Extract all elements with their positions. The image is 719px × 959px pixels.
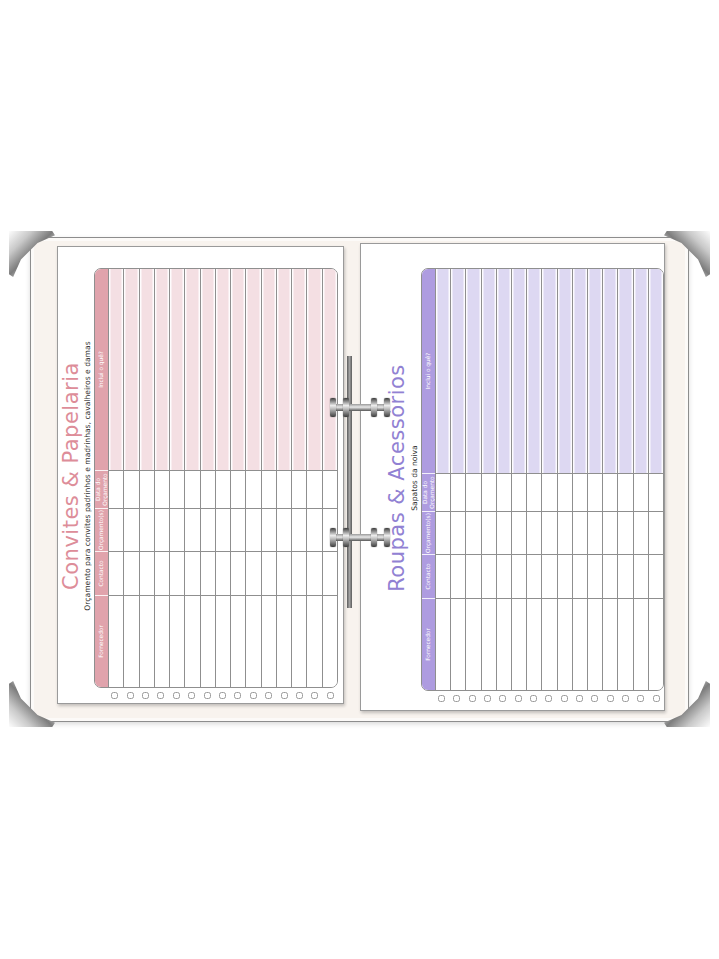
table-row bbox=[526, 269, 541, 690]
table-cell bbox=[292, 595, 306, 687]
table-cell bbox=[155, 595, 169, 687]
row-checkbox-slot bbox=[122, 691, 137, 701]
row-checkbox bbox=[157, 693, 164, 700]
ring-flange bbox=[330, 528, 336, 547]
table-cell bbox=[307, 470, 321, 508]
row-checkbox bbox=[111, 693, 118, 700]
table-cell bbox=[155, 470, 169, 508]
table-cell bbox=[246, 470, 260, 508]
table-cell bbox=[170, 595, 184, 687]
column-header-fornecedor: Fornecedor bbox=[422, 598, 435, 690]
table-cell bbox=[558, 511, 572, 554]
row-checkbox bbox=[142, 693, 149, 700]
table-cell bbox=[201, 595, 215, 687]
ring-flange bbox=[384, 398, 390, 417]
table-cell bbox=[482, 473, 496, 511]
table-cell bbox=[307, 269, 321, 470]
table-cell bbox=[618, 511, 632, 554]
row-checkbox bbox=[327, 693, 334, 700]
row-checkbox-slot bbox=[541, 694, 556, 704]
table-row bbox=[169, 269, 184, 687]
table-cell bbox=[323, 595, 337, 687]
table-cell bbox=[109, 595, 123, 687]
table-cell bbox=[618, 269, 632, 473]
row-checkbox-slot bbox=[230, 691, 245, 701]
row-checkbox bbox=[607, 696, 614, 703]
table-cell bbox=[466, 511, 480, 554]
row-checkbox-slot bbox=[495, 694, 510, 704]
table-cell bbox=[603, 511, 617, 554]
column-header-inclui-o-que: Inclui o quê? bbox=[95, 269, 108, 470]
row-checkbox bbox=[250, 693, 257, 700]
row-checkbox bbox=[545, 696, 552, 703]
table-cell bbox=[649, 554, 663, 598]
table-row bbox=[435, 269, 450, 690]
table-cell bbox=[573, 598, 587, 690]
table-cell bbox=[246, 551, 260, 595]
table-cell bbox=[542, 511, 556, 554]
table-row bbox=[123, 269, 138, 687]
table-cell bbox=[246, 508, 260, 551]
table-cell bbox=[512, 473, 526, 511]
row-checkbox-slot bbox=[480, 694, 495, 704]
row-checkbox-slot bbox=[633, 694, 648, 704]
table-cell bbox=[216, 269, 230, 470]
column-header-fornecedor: Fornecedor bbox=[95, 595, 108, 687]
row-checkbox-slot bbox=[526, 694, 541, 704]
table-cell bbox=[603, 473, 617, 511]
table-cell bbox=[558, 269, 572, 473]
table-cell bbox=[527, 598, 541, 690]
column-header-orcamentos: Orçamento(s) bbox=[95, 508, 108, 551]
table-cell bbox=[231, 269, 245, 470]
table-cell bbox=[466, 554, 480, 598]
row-checkbox-slot bbox=[307, 691, 322, 701]
table-row bbox=[557, 269, 572, 690]
binder-spine-rod bbox=[347, 356, 352, 608]
table-cell bbox=[262, 508, 276, 551]
row-checkbox-slot bbox=[215, 691, 230, 701]
table-row bbox=[291, 269, 306, 687]
table-cell bbox=[588, 269, 602, 473]
table-cell bbox=[512, 598, 526, 690]
table-row bbox=[245, 269, 260, 687]
table-cell bbox=[109, 470, 123, 508]
table-cell bbox=[140, 595, 154, 687]
table-row bbox=[633, 269, 648, 690]
table-cell bbox=[216, 508, 230, 551]
table-cell bbox=[466, 473, 480, 511]
ring-flange bbox=[343, 398, 349, 417]
table-row bbox=[602, 269, 617, 690]
column-header-inclui-o-que: Inclui o quê? bbox=[422, 269, 435, 473]
page-left: Convites & PapelariaOrçamento para convi… bbox=[57, 246, 344, 704]
row-checkbox-slot bbox=[323, 691, 338, 701]
row-checkbox bbox=[576, 696, 583, 703]
row-checkbox bbox=[173, 693, 180, 700]
table-cell bbox=[497, 554, 511, 598]
table-row bbox=[306, 269, 321, 687]
table-cell bbox=[603, 269, 617, 473]
page-title: Convites & Papelaria bbox=[60, 247, 82, 705]
table-cell bbox=[307, 508, 321, 551]
table-cell bbox=[155, 551, 169, 595]
table-cell bbox=[634, 598, 648, 690]
table-cell bbox=[185, 269, 199, 470]
table-cell bbox=[124, 595, 138, 687]
table-cell bbox=[109, 269, 123, 470]
table-cell bbox=[512, 269, 526, 473]
table-row bbox=[450, 269, 465, 690]
table-cell bbox=[323, 551, 337, 595]
table-row bbox=[139, 269, 154, 687]
table-cell bbox=[170, 551, 184, 595]
table-cell bbox=[323, 269, 337, 470]
table-cell bbox=[542, 598, 556, 690]
row-checkbox-slot bbox=[199, 691, 214, 701]
budget-table: FornecedorContactoOrçamento(s)Data do Or… bbox=[94, 268, 338, 688]
table-cell bbox=[588, 554, 602, 598]
row-checkbox bbox=[219, 693, 226, 700]
table-cell bbox=[307, 595, 321, 687]
table-cell bbox=[527, 511, 541, 554]
table-cell bbox=[451, 598, 465, 690]
table-cell bbox=[573, 269, 587, 473]
row-checkbox bbox=[622, 696, 629, 703]
table-cell bbox=[140, 470, 154, 508]
table-row bbox=[230, 269, 245, 687]
row-checkbox bbox=[484, 696, 491, 703]
table-cell bbox=[558, 598, 572, 690]
table-cell bbox=[466, 598, 480, 690]
row-checkbox-slot bbox=[169, 691, 184, 701]
table-cell bbox=[558, 473, 572, 511]
row-checkbox bbox=[453, 696, 460, 703]
table-cell bbox=[436, 511, 450, 554]
table-cell bbox=[201, 470, 215, 508]
table-row bbox=[108, 269, 123, 687]
table-cell bbox=[246, 269, 260, 470]
page-right: Roupas & AcessóriosSapatos da noivaForne… bbox=[360, 243, 665, 711]
row-checkbox bbox=[234, 693, 241, 700]
table-cell bbox=[262, 551, 276, 595]
table-cell bbox=[512, 554, 526, 598]
table-cell bbox=[277, 470, 291, 508]
table-cell bbox=[497, 473, 511, 511]
table-row bbox=[261, 269, 276, 687]
table-cell bbox=[618, 473, 632, 511]
table-cell bbox=[323, 470, 337, 508]
table-cell bbox=[277, 551, 291, 595]
table-cell bbox=[216, 551, 230, 595]
table-cell bbox=[573, 554, 587, 598]
table-cell bbox=[588, 473, 602, 511]
row-checkbox-slot bbox=[261, 691, 276, 701]
ring-rod bbox=[332, 404, 388, 411]
table-cell bbox=[185, 551, 199, 595]
table-cell bbox=[185, 508, 199, 551]
row-checkbox-slot bbox=[603, 694, 618, 704]
row-checkbox-slot bbox=[449, 694, 464, 704]
table-cell bbox=[618, 598, 632, 690]
row-checkbox bbox=[637, 696, 644, 703]
table-cell bbox=[307, 551, 321, 595]
table-row bbox=[541, 269, 556, 690]
table-cell bbox=[649, 269, 663, 473]
table-cell bbox=[201, 269, 215, 470]
table-header-row: FornecedorContactoOrçamento(s)Data do Or… bbox=[95, 269, 108, 687]
table-cell bbox=[292, 551, 306, 595]
table-cell bbox=[527, 554, 541, 598]
table-cell bbox=[292, 508, 306, 551]
ring-rod bbox=[332, 534, 388, 541]
table-cell bbox=[277, 595, 291, 687]
table-cell bbox=[436, 554, 450, 598]
table-row bbox=[648, 269, 663, 690]
column-header-contacto: Contacto bbox=[95, 551, 108, 595]
row-checkbox bbox=[561, 696, 568, 703]
table-cell bbox=[482, 511, 496, 554]
page-subtitle: Orçamento para convites padrinhos e madr… bbox=[83, 247, 92, 705]
table-cell bbox=[436, 269, 450, 473]
table-cell bbox=[482, 554, 496, 598]
row-checkbox bbox=[438, 696, 445, 703]
row-checkbox bbox=[127, 693, 134, 700]
table-row bbox=[215, 269, 230, 687]
table-cell bbox=[573, 511, 587, 554]
budget-table: FornecedorContactoOrçamento(s)Data do Or… bbox=[421, 268, 664, 691]
table-row bbox=[322, 269, 337, 687]
row-checkbox-slot bbox=[276, 691, 291, 701]
row-checkbox bbox=[204, 693, 211, 700]
table-cell bbox=[140, 508, 154, 551]
table-cell bbox=[497, 598, 511, 690]
table-row bbox=[465, 269, 480, 690]
table-row bbox=[572, 269, 587, 690]
table-row bbox=[481, 269, 496, 690]
ring-flange bbox=[371, 398, 377, 417]
table-cell bbox=[482, 598, 496, 690]
table-cell bbox=[155, 269, 169, 470]
table-row bbox=[154, 269, 169, 687]
table-cell bbox=[246, 595, 260, 687]
table-cell bbox=[124, 269, 138, 470]
table-row bbox=[184, 269, 199, 687]
table-cell bbox=[451, 554, 465, 598]
table-row bbox=[276, 269, 291, 687]
table-cell bbox=[497, 511, 511, 554]
table-cell bbox=[451, 269, 465, 473]
table-cell bbox=[216, 595, 230, 687]
table-cell bbox=[170, 508, 184, 551]
binder-ring-top bbox=[330, 398, 390, 417]
row-checkbox bbox=[515, 696, 522, 703]
row-checkbox bbox=[469, 696, 476, 703]
table-cell bbox=[603, 598, 617, 690]
row-checkbox bbox=[296, 693, 303, 700]
table-cell bbox=[588, 598, 602, 690]
row-checkbox bbox=[311, 693, 318, 700]
row-checkbox-slot bbox=[184, 691, 199, 701]
row-checkbox bbox=[188, 693, 195, 700]
row-checkbox-slot bbox=[107, 691, 122, 701]
table-header-row: FornecedorContactoOrçamento(s)Data do Or… bbox=[422, 269, 435, 690]
table-cell bbox=[451, 511, 465, 554]
table-cell bbox=[558, 554, 572, 598]
sheet-roupas: Roupas & AcessóriosSapatos da noivaForne… bbox=[361, 244, 666, 712]
table-cell bbox=[618, 554, 632, 598]
table-cell bbox=[140, 551, 154, 595]
ring-flange bbox=[330, 398, 336, 417]
row-checkbox-slot bbox=[572, 694, 587, 704]
row-checkbox-slot bbox=[246, 691, 261, 701]
page-title: Roupas & Acessórios bbox=[386, 244, 408, 712]
table-cell bbox=[277, 508, 291, 551]
row-checkbox-slot bbox=[649, 694, 664, 704]
table-cell bbox=[170, 470, 184, 508]
ring-flange bbox=[371, 528, 377, 547]
page-subtitle: Sapatos da noiva bbox=[410, 244, 419, 712]
sheet-convites: Convites & PapelariaOrçamento para convi… bbox=[58, 247, 345, 705]
table-cell bbox=[573, 473, 587, 511]
table-cell bbox=[497, 269, 511, 473]
row-checkbox-slot bbox=[138, 691, 153, 701]
row-checkbox bbox=[281, 693, 288, 700]
table-cell bbox=[231, 595, 245, 687]
table-cell bbox=[588, 511, 602, 554]
table-cell bbox=[155, 508, 169, 551]
table-cell bbox=[216, 470, 230, 508]
table-cell bbox=[231, 470, 245, 508]
column-header-contacto: Contacto bbox=[422, 554, 435, 598]
table-cell bbox=[185, 470, 199, 508]
row-checkbox-slot bbox=[557, 694, 572, 704]
table-cell bbox=[466, 269, 480, 473]
table-cell bbox=[201, 508, 215, 551]
binder-ring-bottom bbox=[330, 528, 390, 547]
table-cell bbox=[527, 473, 541, 511]
planner-binder-mockup: Convites & PapelariaOrçamento para convi… bbox=[0, 0, 719, 959]
table-cell bbox=[292, 269, 306, 470]
table-cell bbox=[262, 595, 276, 687]
table-cell bbox=[512, 511, 526, 554]
column-header-orcamentos: Orçamento(s) bbox=[422, 511, 435, 554]
row-checkbox-column bbox=[107, 691, 338, 701]
table-cell bbox=[527, 269, 541, 473]
table-row bbox=[511, 269, 526, 690]
table-cell bbox=[124, 470, 138, 508]
table-cell bbox=[482, 269, 496, 473]
table-cell bbox=[262, 269, 276, 470]
table-cell bbox=[634, 554, 648, 598]
table-cell bbox=[451, 473, 465, 511]
table-cell bbox=[201, 551, 215, 595]
table-cell bbox=[109, 508, 123, 551]
table-cell bbox=[436, 598, 450, 690]
table-cell bbox=[634, 511, 648, 554]
row-checkbox-slot bbox=[587, 694, 602, 704]
table-row bbox=[496, 269, 511, 690]
row-checkbox-slot bbox=[292, 691, 307, 701]
column-header-data-orcamento: Data do Orçamento bbox=[422, 473, 435, 511]
row-checkbox-slot bbox=[618, 694, 633, 704]
row-checkbox bbox=[591, 696, 598, 703]
table-cell bbox=[124, 508, 138, 551]
table-cell bbox=[436, 473, 450, 511]
row-checkbox-slot bbox=[153, 691, 168, 701]
table-cell bbox=[124, 551, 138, 595]
table-row bbox=[617, 269, 632, 690]
row-checkbox-column bbox=[434, 694, 664, 704]
table-cell bbox=[262, 470, 276, 508]
table-cell bbox=[140, 269, 154, 470]
table-cell bbox=[185, 595, 199, 687]
table-cell bbox=[542, 473, 556, 511]
table-cell bbox=[542, 269, 556, 473]
column-header-data-orcamento: Data do Orçamento bbox=[95, 470, 108, 508]
row-checkbox-slot bbox=[511, 694, 526, 704]
table-cell bbox=[634, 473, 648, 511]
ring-flange bbox=[343, 528, 349, 547]
row-checkbox-slot bbox=[465, 694, 480, 704]
ring-flange bbox=[384, 528, 390, 547]
row-checkbox bbox=[653, 696, 660, 703]
table-cell bbox=[649, 473, 663, 511]
row-checkbox bbox=[499, 696, 506, 703]
table-row bbox=[200, 269, 215, 687]
table-cell bbox=[109, 551, 123, 595]
table-cell bbox=[231, 508, 245, 551]
table-row bbox=[587, 269, 602, 690]
table-cell bbox=[649, 598, 663, 690]
table-cell bbox=[292, 470, 306, 508]
row-checkbox-slot bbox=[434, 694, 449, 704]
row-checkbox bbox=[530, 696, 537, 703]
table-cell bbox=[634, 269, 648, 473]
table-cell bbox=[649, 511, 663, 554]
table-cell bbox=[277, 269, 291, 470]
table-cell bbox=[170, 269, 184, 470]
table-cell bbox=[231, 551, 245, 595]
row-checkbox bbox=[265, 693, 272, 700]
table-cell bbox=[603, 554, 617, 598]
table-cell bbox=[542, 554, 556, 598]
